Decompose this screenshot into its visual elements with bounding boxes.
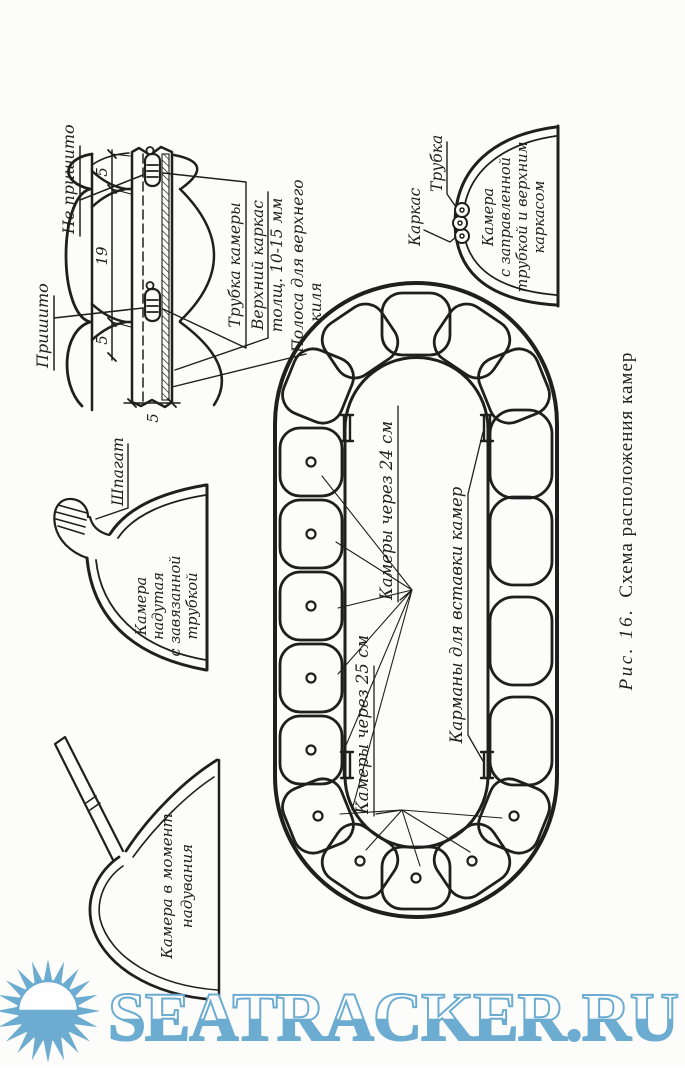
inflation-tube [55, 737, 123, 860]
tucked-caption-2: с заправленной [498, 157, 514, 277]
valve-dot [307, 746, 316, 755]
label-chamber-tube: Трубка камеры [226, 202, 244, 327]
tied-tube [54, 499, 88, 558]
tied-chamber-drawing: Шпагат Камера надутая с завязанной трубк… [54, 437, 207, 670]
keel-strip-hatch [162, 154, 169, 400]
chamber [490, 497, 552, 585]
chamber-end-left [277, 773, 556, 909]
valve-dot [307, 602, 316, 611]
dim-19: 19 [93, 246, 111, 266]
chamber [382, 293, 450, 355]
label-keel-strip-2: киля [307, 282, 325, 321]
valve-dot [307, 530, 316, 539]
twine-wrap-hatch [56, 505, 87, 534]
inflating-caption-2: надувания [178, 844, 196, 928]
chamber [490, 597, 552, 685]
tucked-caption-1: Камера [481, 188, 497, 247]
chamber [426, 296, 517, 385]
dim-5-left: 5 [93, 335, 111, 345]
hull-outer-outline [275, 283, 557, 917]
watermark-text: SEATRACKER.RU [108, 979, 678, 1055]
pocket-mark [341, 752, 353, 778]
figure-16-scan: 5 19 5 5 [0, 0, 685, 1066]
valve-dot [468, 857, 477, 866]
label-keel-strip-1: Полоса для верхнего [289, 179, 307, 353]
chamber-body [174, 155, 197, 188]
figure-caption: Рис. 16.Схема расположения камер [616, 352, 637, 692]
dim-5-thickness: 5 [144, 413, 162, 423]
extension-lines [112, 154, 131, 327]
tucked-caption-4: каркасом [532, 181, 548, 254]
caption-number: Рис. 16. [616, 608, 637, 692]
valve-dot [412, 874, 421, 883]
chamber-row-bottom [490, 410, 552, 785]
inflating-caption-1: Камера в момент [158, 813, 176, 960]
chamber-bulge [67, 322, 90, 406]
tucked-chamber-drawing: Каркас Трубка Камера с заправленной труб… [406, 126, 558, 306]
rotated-figure: 5 19 5 5 [33, 124, 637, 1000]
dim-5-right: 5 [93, 167, 111, 177]
label-spacing-24-underline [398, 406, 412, 602]
label-frame: Каркас [406, 187, 424, 247]
tied-tube [90, 517, 109, 535]
valve-dot [314, 812, 323, 821]
chamber-body [180, 189, 214, 321]
label-upper-frame-2: толщ. 10-15 мм [268, 198, 286, 333]
tied-caption-4: трубкой [185, 572, 201, 639]
valve-dot [307, 458, 316, 467]
chamber [490, 697, 552, 785]
label-tube: Трубка [428, 135, 446, 192]
caption-text: Рис. 16.Схема расположения камер [616, 352, 637, 692]
label-sewn: Пришито [33, 283, 52, 369]
inflating-chamber-drawing: Камера в момент надувания [55, 737, 219, 1000]
valve-dot [510, 812, 519, 821]
caption-title: Схема расположения камер [616, 352, 637, 598]
tied-caption-2: надутая [151, 572, 167, 640]
label-frame-leader [424, 230, 456, 242]
chamber [490, 410, 552, 498]
boat-plan-drawing: Камеры через 24 см Камеры через 25 см Ка… [275, 283, 557, 917]
chamber [314, 296, 405, 385]
label-pockets: Карманы для вставки камер [447, 486, 466, 744]
tucked-caption-3: трубкой и верхним [515, 142, 531, 293]
label-upper-frame-1: Верхний каркас [249, 200, 267, 331]
label-twine: Шпагат [109, 437, 127, 507]
valve-dot [307, 674, 316, 683]
label-spacing-25: Камеры через 25 см [353, 635, 372, 815]
inner-wall [118, 495, 206, 538]
label-tube-leader [447, 142, 456, 207]
label-spacing-25-underline [374, 666, 402, 816]
label-not-sewn: Не пришито [59, 124, 78, 235]
label-pockets-leaders [468, 432, 483, 761]
tied-caption-1: Камера [134, 577, 150, 636]
tied-caption-3: с завязанной [168, 555, 184, 656]
watermark: SEATRACKER.RU [0, 959, 678, 1063]
scanned-page: 5 19 5 5 [0, 0, 685, 1066]
valve-dot [356, 857, 365, 866]
